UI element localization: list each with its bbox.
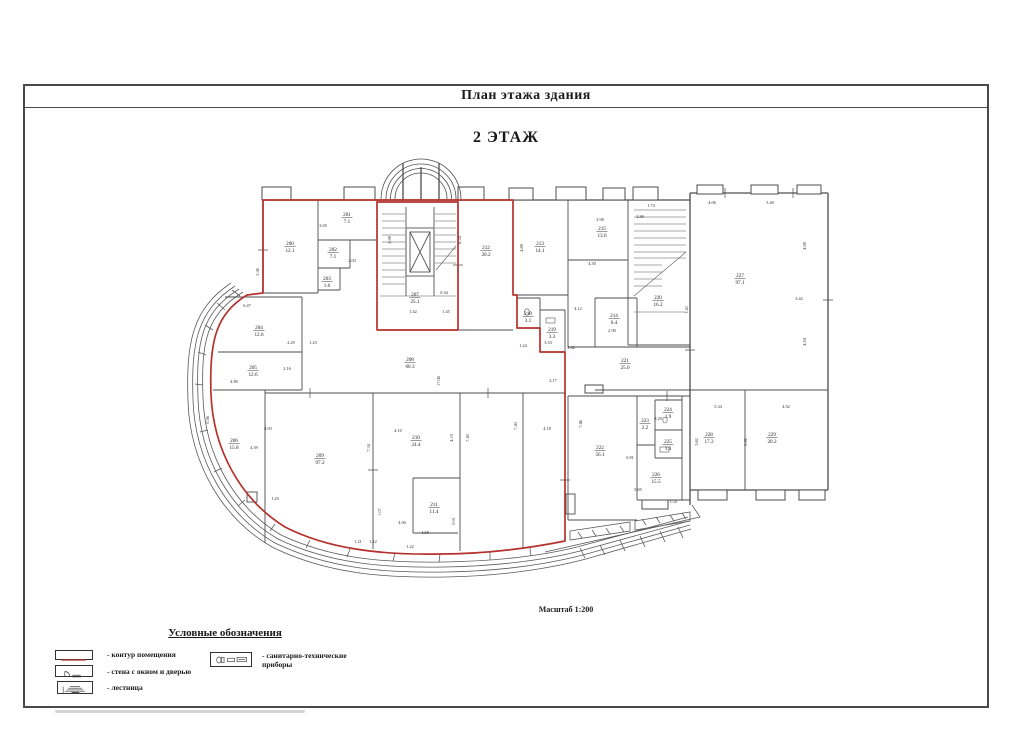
svg-text:4.98: 4.98 bbox=[387, 236, 392, 244]
svg-text:14.1: 14.1 bbox=[535, 248, 544, 254]
svg-text:56.1: 56.1 bbox=[595, 452, 604, 458]
elevator-shaft bbox=[406, 228, 434, 276]
svg-text:4.88: 4.88 bbox=[519, 244, 524, 252]
red-contour bbox=[211, 200, 565, 554]
svg-text:25.1: 25.1 bbox=[410, 299, 419, 305]
svg-text:7.40: 7.40 bbox=[465, 434, 470, 442]
svg-text:204: 204 bbox=[255, 325, 263, 331]
svg-text:3.42: 3.42 bbox=[795, 296, 803, 301]
sanitary-icon bbox=[211, 653, 251, 666]
svg-text:201: 201 bbox=[343, 212, 351, 218]
svg-text:6.34: 6.34 bbox=[457, 235, 462, 243]
svg-text:3.98: 3.98 bbox=[596, 217, 604, 222]
svg-text:2.16: 2.16 bbox=[283, 366, 291, 371]
svg-text:200: 200 bbox=[286, 241, 294, 247]
svg-text:1.42: 1.42 bbox=[409, 309, 417, 314]
svg-text:208: 208 bbox=[406, 357, 414, 363]
svg-text:15.5: 15.5 bbox=[651, 479, 660, 485]
svg-text:0.91: 0.91 bbox=[451, 517, 456, 525]
svg-text:5.36: 5.36 bbox=[255, 267, 260, 275]
svg-text:16.2: 16.2 bbox=[653, 302, 662, 308]
svg-text:4.58: 4.58 bbox=[421, 530, 429, 535]
svg-text:226: 226 bbox=[652, 472, 660, 478]
svg-text:206: 206 bbox=[230, 438, 238, 444]
svg-text:6.4: 6.4 bbox=[611, 320, 618, 326]
svg-text:7.34: 7.34 bbox=[366, 443, 371, 451]
svg-text:7.1: 7.1 bbox=[344, 219, 351, 225]
legend-box-stairs bbox=[57, 681, 93, 694]
svg-text:17.06: 17.06 bbox=[436, 375, 441, 386]
svg-text:11.4: 11.4 bbox=[430, 509, 439, 515]
svg-text:4.94: 4.94 bbox=[802, 337, 807, 345]
svg-text:20.2: 20.2 bbox=[767, 439, 776, 445]
svg-text:4.50: 4.50 bbox=[588, 261, 596, 266]
svg-text:220: 220 bbox=[654, 295, 662, 301]
scale-label: Масштаб 1:200 bbox=[516, 605, 616, 614]
svg-text:225: 225 bbox=[664, 439, 672, 445]
svg-text:203: 203 bbox=[323, 276, 331, 282]
svg-text:1.54: 1.54 bbox=[669, 499, 677, 504]
svg-text:1.9: 1.9 bbox=[665, 446, 672, 452]
scan-smudge bbox=[55, 710, 305, 713]
svg-text:4.12: 4.12 bbox=[574, 306, 582, 311]
svg-text:7.40: 7.40 bbox=[513, 422, 518, 430]
svg-text:97.2: 97.2 bbox=[315, 460, 324, 466]
svg-text:228: 228 bbox=[705, 432, 713, 438]
svg-text:210: 210 bbox=[412, 435, 420, 441]
svg-text:1.23: 1.23 bbox=[309, 340, 317, 345]
svg-text:212: 212 bbox=[482, 245, 490, 251]
svg-text:25.0: 25.0 bbox=[620, 365, 629, 371]
svg-text:3.62: 3.62 bbox=[694, 438, 699, 446]
svg-text:12.6: 12.6 bbox=[254, 332, 263, 338]
svg-text:4.62: 4.62 bbox=[567, 345, 575, 350]
svg-text:3.1: 3.1 bbox=[525, 318, 532, 324]
room-labels: 20012.12017.12027.12031.620412.620512.62… bbox=[229, 212, 778, 515]
svg-text:214: 214 bbox=[610, 313, 618, 319]
svg-text:215: 215 bbox=[598, 226, 606, 232]
svg-text:4.93: 4.93 bbox=[264, 426, 272, 431]
svg-text:4.98: 4.98 bbox=[802, 242, 807, 250]
svg-text:2.2: 2.2 bbox=[642, 425, 649, 431]
svg-text:4.10: 4.10 bbox=[394, 428, 402, 433]
stairs-icon bbox=[58, 684, 92, 695]
svg-text:0.56: 0.56 bbox=[205, 415, 210, 423]
svg-text:0.81: 0.81 bbox=[626, 455, 634, 460]
svg-text:209: 209 bbox=[316, 453, 324, 459]
svg-text:205: 205 bbox=[249, 365, 257, 371]
svg-text:24.4: 24.4 bbox=[411, 442, 420, 448]
svg-text:227: 227 bbox=[736, 273, 744, 279]
svg-text:5.05: 5.05 bbox=[634, 487, 642, 492]
svg-text:1.43: 1.43 bbox=[684, 306, 689, 314]
svg-text:7.1: 7.1 bbox=[330, 254, 337, 260]
legend-box-wall bbox=[55, 665, 93, 677]
svg-text:4.06: 4.06 bbox=[398, 520, 406, 525]
svg-text:1.21: 1.21 bbox=[354, 539, 362, 544]
svg-text:1.25: 1.25 bbox=[271, 496, 279, 501]
svg-text:97.1: 97.1 bbox=[735, 280, 744, 286]
wall-window-door-icon bbox=[56, 669, 92, 679]
svg-text:20.2: 20.2 bbox=[481, 252, 490, 258]
svg-text:1.12: 1.12 bbox=[369, 539, 377, 544]
legend-label-contour: - контур помещения bbox=[107, 651, 176, 660]
svg-text:2.90: 2.90 bbox=[608, 328, 616, 333]
svg-text:0.92: 0.92 bbox=[743, 438, 748, 446]
svg-text:1.24: 1.24 bbox=[519, 343, 527, 348]
svg-text:3.40: 3.40 bbox=[766, 200, 774, 205]
svg-text:218: 218 bbox=[524, 311, 532, 317]
svg-text:1.74: 1.74 bbox=[647, 203, 655, 208]
svg-text:5.34: 5.34 bbox=[714, 404, 722, 409]
svg-text:60.3: 60.3 bbox=[405, 364, 414, 370]
svg-text:2.03: 2.03 bbox=[348, 258, 356, 263]
svg-text:4.92: 4.92 bbox=[782, 404, 790, 409]
svg-text:4.19: 4.19 bbox=[449, 434, 454, 442]
svg-text:6.47: 6.47 bbox=[243, 303, 251, 308]
svg-text:1.07: 1.07 bbox=[377, 507, 382, 515]
svg-text:207: 207 bbox=[411, 292, 419, 298]
svg-text:4.06: 4.06 bbox=[708, 200, 716, 205]
svg-text:7.46: 7.46 bbox=[578, 419, 583, 427]
svg-text:229: 229 bbox=[768, 432, 776, 438]
scanned-sheet: План этажа здания 2 ЭТАЖ bbox=[0, 0, 1024, 746]
svg-text:223: 223 bbox=[641, 418, 649, 424]
svg-text:1.45: 1.45 bbox=[442, 309, 450, 314]
svg-text:1.22: 1.22 bbox=[406, 544, 414, 549]
svg-text:0.44: 0.44 bbox=[440, 290, 448, 295]
svg-text:1.9: 1.9 bbox=[665, 414, 672, 420]
svg-text:219: 219 bbox=[548, 327, 556, 333]
svg-text:3.05: 3.05 bbox=[319, 223, 327, 228]
svg-text:15.8: 15.8 bbox=[229, 445, 238, 451]
legend-label-wall: - стена с окном и дверью bbox=[107, 668, 191, 677]
legend-title: Условные обозначения bbox=[150, 627, 300, 639]
svg-text:3.33: 3.33 bbox=[544, 340, 552, 345]
svg-text:17.2: 17.2 bbox=[704, 439, 713, 445]
svg-text:222: 222 bbox=[596, 445, 604, 451]
svg-text:211: 211 bbox=[430, 502, 438, 508]
svg-text:1.6: 1.6 bbox=[324, 283, 331, 289]
svg-text:224: 224 bbox=[664, 407, 672, 413]
svg-text:4.80: 4.80 bbox=[230, 379, 238, 384]
svg-text:202: 202 bbox=[329, 247, 337, 253]
svg-text:213: 213 bbox=[536, 241, 544, 247]
svg-text:2.86: 2.86 bbox=[636, 214, 644, 219]
room-contour-icon bbox=[56, 656, 92, 664]
svg-text:4.39: 4.39 bbox=[250, 445, 258, 450]
legend-box-contour bbox=[55, 650, 93, 660]
svg-text:221: 221 bbox=[621, 358, 629, 364]
legend-label-sanitary: - санитарно-технические приборы bbox=[262, 652, 362, 669]
legend-box-sanitary bbox=[210, 652, 252, 667]
svg-text:12.1: 12.1 bbox=[285, 248, 294, 254]
pilasters bbox=[262, 185, 825, 509]
svg-text:4.18: 4.18 bbox=[543, 426, 551, 431]
svg-text:13.6: 13.6 bbox=[597, 233, 606, 239]
wall-ticks bbox=[258, 188, 833, 480]
svg-text:2.17: 2.17 bbox=[549, 378, 557, 383]
svg-text:2.29: 2.29 bbox=[287, 340, 295, 345]
svg-text:12.6: 12.6 bbox=[248, 372, 257, 378]
svg-text:8.29: 8.29 bbox=[654, 416, 662, 421]
legend-label-stairs: - лестница bbox=[107, 684, 143, 693]
